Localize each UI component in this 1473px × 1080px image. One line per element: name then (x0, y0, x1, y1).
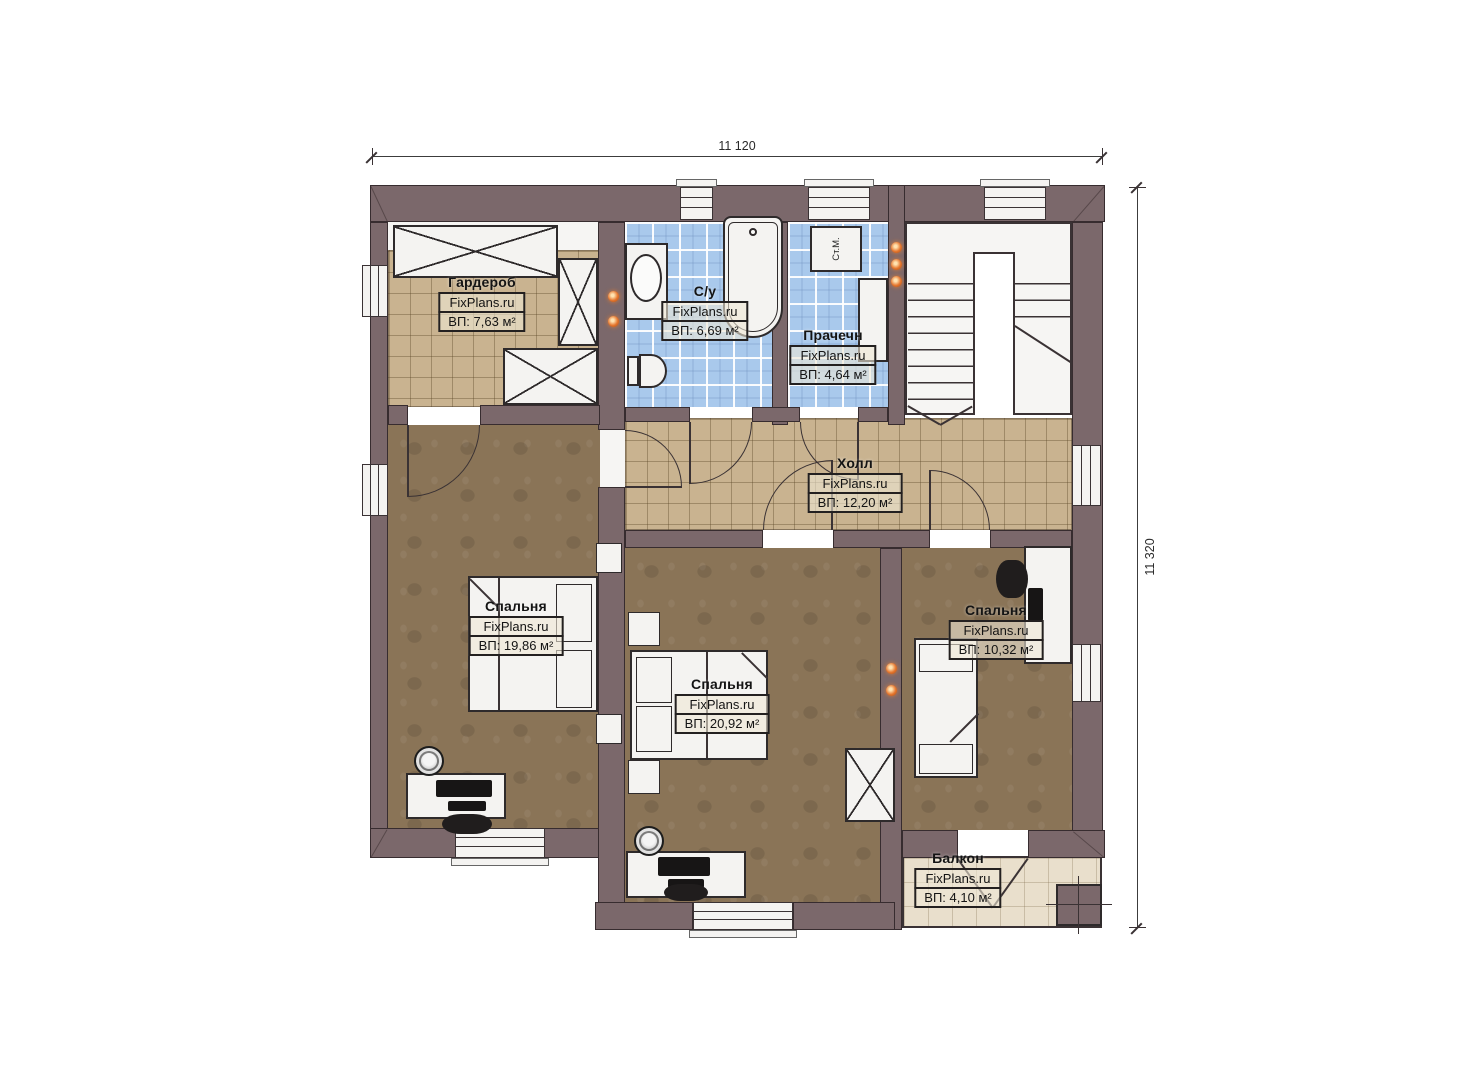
room-name: Спальня (469, 598, 564, 614)
floor-plan: Ст.М. Гардероб FixPlans.ru ВП: 7,63 м² С… (0, 0, 1473, 1080)
keyboard (448, 801, 486, 811)
doorway-threshold (598, 430, 625, 487)
wall-lamp-icon (891, 259, 902, 270)
room-label-bedroom-middle: Спальня FixPlans.ru ВП: 20,92 м² (675, 676, 770, 734)
dimension-line-top (372, 156, 1103, 157)
room-label-bedroom-left: Спальня FixPlans.ru ВП: 19,86 м² (469, 598, 564, 656)
blanket (919, 744, 973, 774)
brand-box: FixPlans.ru (469, 616, 564, 637)
nightstand (628, 612, 660, 646)
brand-box: FixPlans.ru (914, 868, 1001, 889)
wall-hall-bedrooms-a (625, 530, 763, 548)
brand-box: FixPlans.ru (438, 292, 525, 313)
room-name: Гардероб (438, 274, 525, 290)
area-box: ВП: 4,64 м² (789, 364, 876, 385)
area-box: ВП: 4,10 м² (914, 887, 1001, 908)
window (693, 902, 793, 930)
area-box: ВП: 6,69 м² (661, 320, 748, 341)
window-sill (804, 179, 874, 187)
door-leaf (929, 470, 931, 530)
brand-box: FixPlans.ru (949, 620, 1044, 641)
desk-chair (996, 560, 1028, 598)
room-label-hall: Холл FixPlans.ru ВП: 12,20 м² (808, 455, 903, 513)
room-label-bedroom-right: Спальня FixPlans.ru ВП: 10,32 м² (949, 602, 1044, 660)
window (362, 464, 388, 516)
wall-bottom-middle-b (793, 902, 895, 930)
desk-chair (442, 814, 492, 834)
nightstand (596, 543, 622, 573)
pillow (636, 657, 672, 703)
desk-chair (664, 884, 708, 901)
pillow (636, 706, 672, 752)
window (362, 265, 388, 317)
area-box: ВП: 19,86 м² (469, 635, 564, 656)
window (984, 187, 1046, 220)
brand-box: FixPlans.ru (789, 345, 876, 366)
stair-void (973, 252, 1015, 415)
toilet-tank (627, 356, 639, 386)
wall-wardrobe-bedroom-a (388, 405, 408, 425)
brand-box: FixPlans.ru (808, 473, 903, 494)
window (1072, 644, 1101, 702)
room-name: Холл (808, 455, 903, 471)
room-label-bathroom: С/у FixPlans.ru ВП: 6,69 м² (661, 283, 748, 341)
wall-lamp-icon (891, 242, 902, 253)
room-label-balcony: Балкон FixPlans.ru ВП: 4,10 м² (914, 850, 1001, 908)
room-name: Прачечн (789, 327, 876, 343)
room-name: Балкон (914, 850, 1001, 866)
window (808, 187, 870, 220)
plant-pot (414, 746, 444, 776)
wall-laundry-hall (858, 407, 888, 422)
wall-lamp-icon (608, 316, 619, 327)
wall-bottom-middle-a (595, 902, 693, 930)
door-leaf (407, 425, 409, 497)
washing-machine: Ст.М. (810, 226, 862, 272)
wall-hall-bedrooms-b (833, 530, 930, 548)
plant-pot (634, 826, 664, 856)
dimension-width-label: 11 120 (718, 139, 755, 153)
wall-lamp-icon (608, 291, 619, 302)
wall-left (370, 222, 388, 858)
wall-wardrobe-bedroom-b (480, 405, 600, 425)
wall-bedroomM-bedroomR (880, 548, 902, 930)
monitor (436, 780, 492, 797)
area-box: ВП: 20,92 м² (675, 713, 770, 734)
area-box: ВП: 10,32 м² (949, 639, 1044, 660)
window-sill (676, 179, 717, 187)
stair-steps-right (1015, 283, 1072, 323)
dimension-height-label: 11 320 (1143, 538, 1157, 575)
window (1072, 445, 1101, 506)
brand-box: FixPlans.ru (661, 301, 748, 322)
room-name: Спальня (949, 602, 1044, 618)
monitor (658, 857, 710, 876)
pillar-centerline (1078, 876, 1079, 934)
wall-bedroomR-balcony-b (1028, 830, 1105, 858)
room-name: Спальня (675, 676, 770, 692)
window-sill (451, 858, 549, 866)
wall-right (1072, 222, 1103, 845)
pillow (556, 650, 592, 708)
nightstand (628, 760, 660, 794)
area-box: ВП: 7,63 м² (438, 311, 525, 332)
wall-lamp-icon (886, 685, 897, 696)
washing-machine-label: Ст.М. (815, 225, 857, 273)
dimension-line-right (1137, 187, 1138, 928)
room-name: С/у (661, 283, 748, 299)
window-sill (689, 930, 797, 938)
closet-unit (503, 348, 598, 405)
sink (630, 254, 662, 302)
closet-unit (845, 748, 895, 822)
nightstand (596, 714, 622, 744)
window (680, 187, 713, 220)
area-box: ВП: 12,20 м² (808, 492, 903, 513)
wall-lamp-icon (886, 663, 897, 674)
wall-bath-hall-a (625, 407, 690, 422)
wall-laundry-stairs (888, 185, 905, 425)
wall-bath-hall-b (752, 407, 800, 422)
stair-steps-left (908, 283, 973, 415)
closet-unit (558, 258, 598, 346)
room-label-wardrobe: Гардероб FixPlans.ru ВП: 7,63 м² (438, 274, 525, 332)
brand-box: FixPlans.ru (675, 694, 770, 715)
door-leaf (689, 422, 691, 484)
door-leaf (625, 486, 682, 488)
window-sill (980, 179, 1050, 187)
bathtub-drain (749, 228, 757, 236)
room-label-laundry: Прачечн FixPlans.ru ВП: 4,64 м² (789, 327, 876, 385)
closet-unit (393, 225, 558, 278)
wall-lamp-icon (891, 276, 902, 287)
